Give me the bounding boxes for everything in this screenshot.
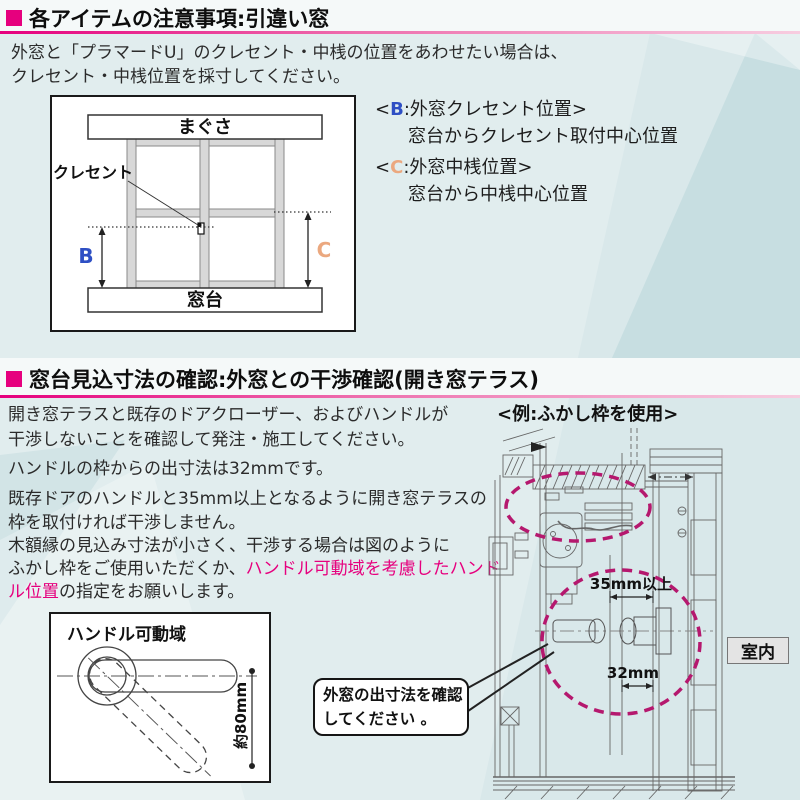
s2-p4-line2: ふかし枠をご使用いただくか、ハンドル可動域を考慮したハンド <box>8 557 501 581</box>
handle-rotated-shape <box>77 646 222 780</box>
magenta-square-bullet <box>6 371 22 387</box>
dimension-b-arrow <box>99 227 106 288</box>
section2-header: 窓台見込寸法の確認:外窓との干渉確認(開き窓テラス) <box>6 364 539 394</box>
legend-b-desc: 窓台からクレセント取付中心位置 <box>408 122 678 148</box>
wall-arrow-icon <box>531 442 547 452</box>
legend-b-title: <B:外窓クレセント位置> <box>375 95 587 121</box>
svg-text:約80mm: 約80mm <box>232 682 250 749</box>
cad-frame-lines <box>489 428 735 799</box>
section1-title: 各アイテムの注意事項:引違い窓 <box>29 3 329 33</box>
window-frame <box>127 139 284 288</box>
sill-label: 窓台 <box>187 289 223 311</box>
svg-text:35mm以上: 35mm以上 <box>590 575 672 593</box>
s2-p3-line1: 既存ドアのハンドルと35mm以上となるように開き窓テラスの <box>8 487 487 511</box>
section1-body-line1: 外窓と「プラマードU」のクレセント・中桟の位置をあわせたい場合は、 <box>11 41 567 65</box>
crescent-leader-line <box>128 181 198 225</box>
magenta-square-bullet <box>6 10 22 26</box>
legend-b-letter: B <box>390 99 404 120</box>
dimension-80mm: 約80mm <box>232 668 255 769</box>
s2-p3-line2: 枠を取付ければ干渉しません。 <box>8 511 246 535</box>
handle-range-title: ハンドル可動域 <box>67 624 186 645</box>
s2-p1-line2: 干渉しないことを確認して発注・施工してください。 <box>8 428 414 452</box>
s2-p2: ハンドルの枠からの出寸法は32mmです。 <box>8 457 333 481</box>
handle-range-box: ハンドル可動域 約80mm <box>49 612 271 783</box>
dimension-b-label: B <box>78 244 93 268</box>
legend-c-rest: :外窓中桟位置> <box>403 157 532 178</box>
dimension-32mm: 32mm <box>607 664 659 692</box>
legend-b-open: < <box>375 99 390 120</box>
page: 各アイテムの注意事項:引違い窓 外窓と「プラマードU」のクレセント・中桟の位置を… <box>0 0 800 800</box>
section2-header-rule <box>0 395 800 398</box>
s2-p4-line3-highlight: ル位置 <box>8 582 59 602</box>
section2-title: 窓台見込寸法の確認:外窓との干渉確認(開き窓テラス) <box>29 364 539 394</box>
legend-c-open: < <box>375 157 390 178</box>
s2-p4-line1: 木額縁の見込み寸法が小さく、干渉する場合は図のように <box>8 534 450 558</box>
section1-header: 各アイテムの注意事項:引違い窓 <box>6 3 329 33</box>
s2-p4-line2-highlight: ハンドル可動域を考慮したハンド <box>246 559 501 579</box>
dimension-35mm: 35mm以上 <box>590 575 672 603</box>
s2-p1-line1: 開き窓テラスと既存のドアクローザー、およびハンドルが <box>8 403 448 427</box>
room-label: 室内 <box>727 637 789 664</box>
door-handles <box>535 608 713 654</box>
dimension-c-arrow <box>305 212 312 288</box>
closer-highlight-ellipse <box>506 473 650 541</box>
section1-body-line2: クレセント・中桟位置を採寸してください。 <box>11 65 350 89</box>
legend-c-letter: C <box>390 157 403 178</box>
window-diagram: まぐさ 窓台 クレセント B C <box>52 97 353 329</box>
callout-bubble: 外窓の出寸法を確認 してください 。 <box>313 678 469 736</box>
crescent-label: クレセント <box>53 163 133 182</box>
legend-c-desc: 窓台から中桟中心位置 <box>408 180 588 206</box>
callout-line1: 外窓の出寸法を確認 <box>323 683 459 707</box>
example-label: <例:ふかし枠を使用> <box>497 400 678 426</box>
legend-c-title: <C:外窓中桟位置> <box>375 153 532 179</box>
s2-p4-line3: ル位置の指定をお願いします。 <box>8 580 244 604</box>
callout-line2: してください 。 <box>323 707 459 731</box>
lintel-label: まぐさ <box>178 117 232 138</box>
cad-cross-section-drawing: 35mm以上 32mm <box>485 425 735 800</box>
dimension-c-label: C <box>317 238 332 262</box>
svg-text:32mm: 32mm <box>607 664 659 682</box>
band-double-arrow <box>648 474 693 481</box>
s2-p4-line3-post: の指定をお願いします。 <box>59 582 244 602</box>
legend-b-rest: :外窓クレセント位置> <box>404 99 587 120</box>
handle-range-diagram: ハンドル可動域 約80mm <box>51 614 268 780</box>
handle-shape <box>57 647 257 705</box>
s2-p4-line2-pre: ふかし枠をご使用いただくか、 <box>8 559 246 579</box>
window-diagram-box: まぐさ 窓台 クレセント B C <box>50 95 356 332</box>
